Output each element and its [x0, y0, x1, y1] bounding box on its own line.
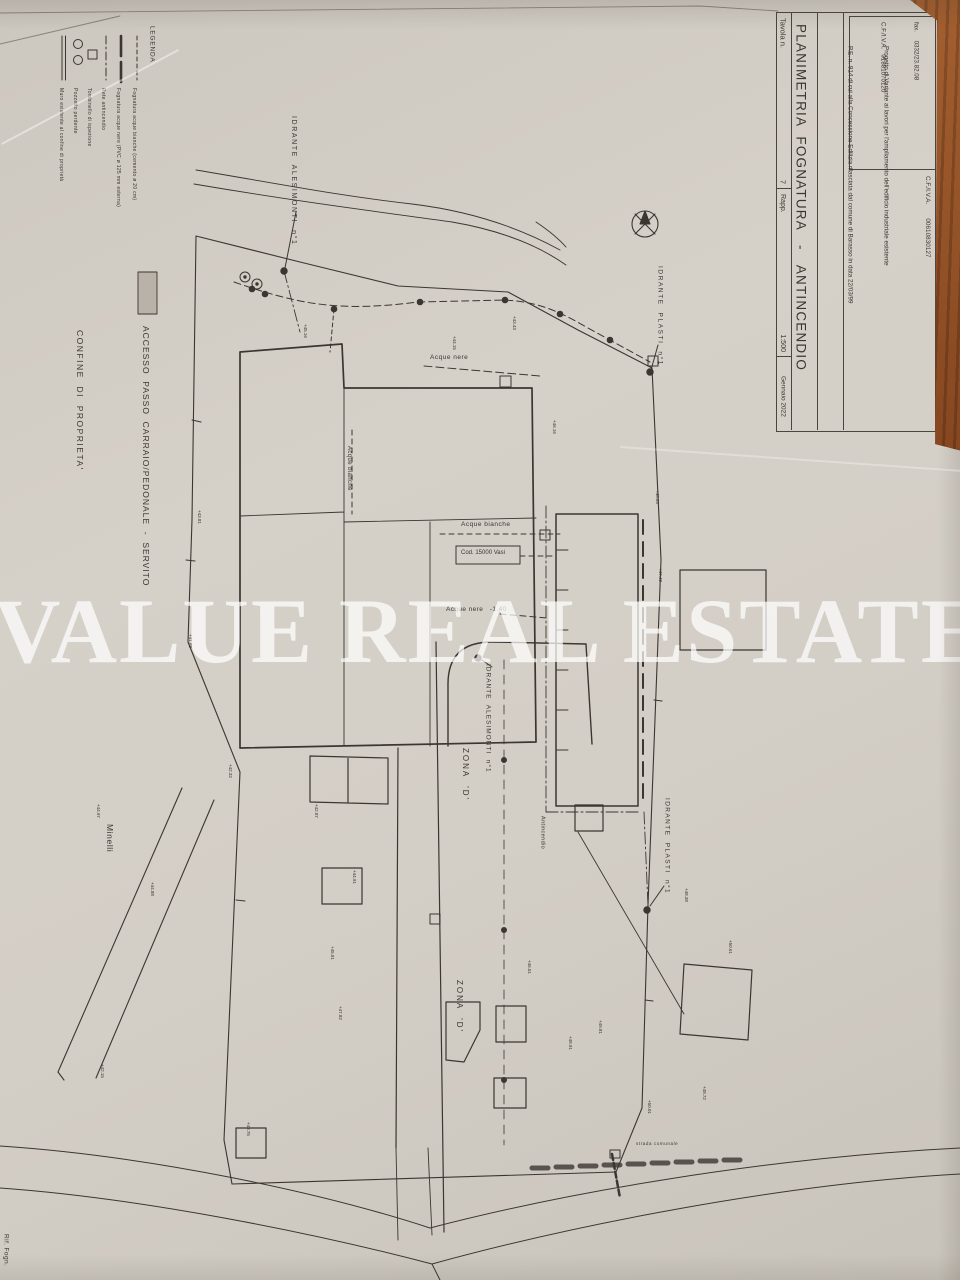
elevation-mark: +44.88 [150, 882, 155, 908]
label-cod-vasi: Cod. 15000 Vasi [461, 550, 519, 556]
minelli-parcel [58, 788, 214, 1080]
legend-item-1: Fognatura acque nere (PVC ø 125 mm ester… [114, 88, 120, 318]
legend-item-4: Pozzetto perdente [71, 88, 77, 318]
scale: Rapp.1:500 [778, 194, 786, 352]
label-acque-nere-top: Acque nere [430, 354, 500, 361]
photographed-drawing-sheet: LEGENDAFognatura acque bianche (cemento … [0, 0, 960, 1280]
elevation-mark: +49.81 [598, 1020, 603, 1046]
label-minelli: Minelli [104, 824, 114, 872]
north-symbol [632, 211, 658, 237]
elevation-mark: +45.16 [303, 324, 308, 350]
annex-buildings [236, 756, 603, 1158]
stream-lines [194, 170, 566, 265]
elevation-mark: +50.01 [647, 1100, 652, 1126]
label-rif-fognatura: Rif. Fogn. [2, 1234, 9, 1280]
elevation-mark: +48.65 [655, 490, 660, 516]
label-zona-d-2: ZONA 'D' [455, 980, 464, 1044]
elevation-mark: +43.43 [512, 316, 517, 342]
engineer-info: Ing. Giuseppe Ambrosetti via Robbioni N.… [855, 22, 960, 164]
drawing-title: PLANIMETRIA FOGNATURA - ANTINCENDIO [793, 24, 809, 402]
legend-boundary-label: CONFINE DI PROPRIETA' [74, 330, 84, 480]
label-zona-d-1: ZONA 'D' [461, 748, 470, 812]
legend-item-5: Muro esistente al confine di proprietà [57, 88, 63, 318]
road-hatch-strip [532, 1160, 740, 1168]
access-swatch [138, 272, 157, 314]
label-acque-bianche-horiz: Acque bianche [461, 521, 545, 528]
elevation-mark: +42.87 [314, 804, 319, 830]
elevation-mark: +48.38 [684, 888, 689, 914]
label-idrante-alesimonti-1: IDRANTE ALESIMONTI n°1 [289, 116, 297, 306]
elevation-mark: +46.16 [552, 420, 557, 446]
elevation-mark: +46.51 [527, 960, 532, 986]
elevation-mark: +47.82 [338, 1006, 343, 1032]
legend-item-0: Fognatura acque bianche (cemento ø 20 cm… [130, 88, 136, 318]
label-idrante-plasti-1: IDRANTE PLASTI n°1 [656, 266, 663, 416]
sheet-edge-lines [0, 6, 778, 44]
road-pole [610, 1150, 620, 1198]
legend-access-label: ACCESSO PASSO CARRAIO/PEDONALE - SERVITO [140, 326, 150, 588]
elevation-mark: +48.91 [568, 1036, 573, 1062]
bottom-roads [0, 1146, 960, 1280]
elevation-mark: +50.61 [728, 940, 733, 966]
elevation-mark: +43.75 [246, 1122, 251, 1148]
legend-item-2: Rete antincendio [99, 88, 105, 318]
label-strada-comunale: strada comunale [636, 1141, 706, 1146]
watermark-text: VALUE REAL ESTATE [0, 578, 960, 684]
label-acque-bianche-vert: Acque bianche [345, 446, 352, 526]
elevation-mark: +44.91 [352, 870, 357, 896]
elevation-mark: +42.32 [228, 764, 233, 790]
legend-title: LEGENDA [148, 26, 155, 80]
hydrant-symbols [281, 212, 664, 913]
driveway-corridor [396, 642, 592, 1240]
date: Gennaio 2022 [779, 376, 786, 428]
legend-samples [62, 36, 137, 82]
label-idrante-plasti-2: IDRANTE PLASTI n°1 [663, 798, 670, 943]
elevation-mark: +45.81 [330, 946, 335, 972]
label-antincendio: Antincendio [539, 816, 545, 882]
client-info: Committ.: Ditta MONTI & C. con sede in B… [896, 176, 960, 426]
label-idrante-alesimonti-2: IDRANTE ALESIMONTI n°1 [484, 664, 491, 829]
elevation-mark: +42.15 [100, 1064, 105, 1090]
elevation-mark: +48.72 [702, 1086, 707, 1112]
sheet-number: Tavola n.7 [778, 18, 787, 184]
legend-item-3: Tombinello di ispezione [85, 88, 91, 318]
elevation-mark: +44.15 [452, 336, 457, 362]
main-building-internal [240, 388, 536, 746]
elevation-mark: +43.81 [197, 510, 202, 536]
elevation-mark: +44.97 [96, 804, 101, 830]
